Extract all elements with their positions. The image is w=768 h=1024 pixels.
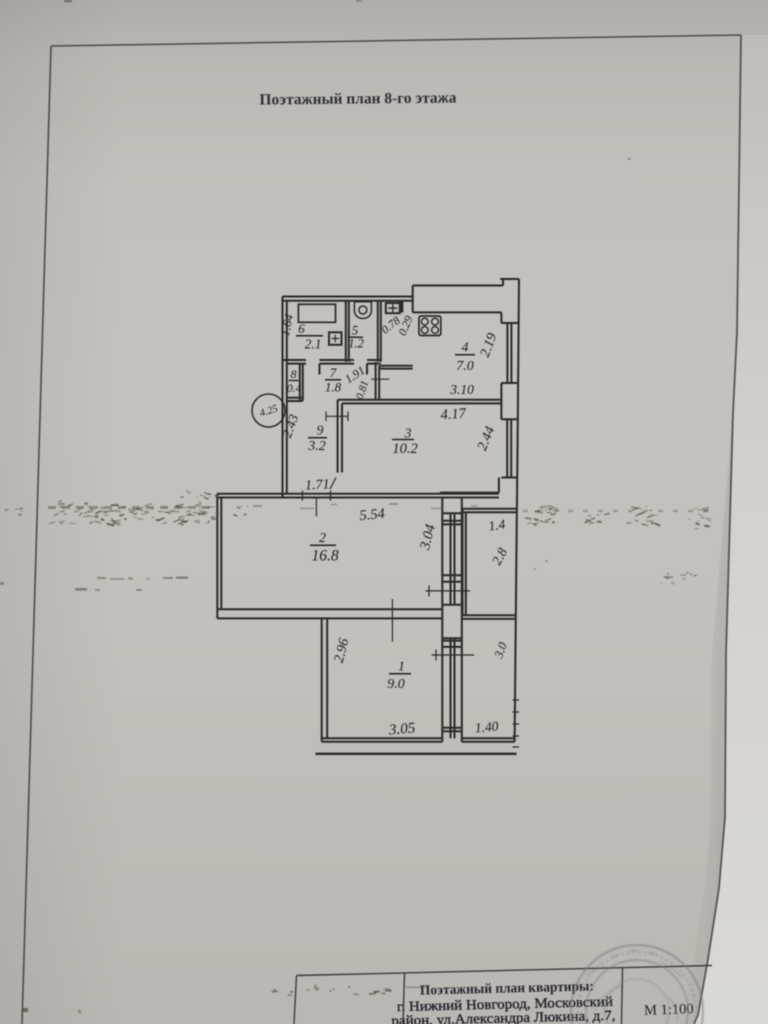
svg-text:0.4: 0.4	[287, 383, 302, 395]
svg-text:3.05: 3.05	[387, 720, 416, 738]
svg-text:3.2: 3.2	[307, 439, 326, 454]
svg-text:2: 2	[319, 531, 326, 546]
svg-text:1.4: 1.4	[487, 516, 506, 533]
svg-text:4: 4	[462, 341, 469, 356]
svg-text:5: 5	[352, 323, 359, 338]
svg-text:16.8: 16.8	[311, 548, 338, 565]
svg-text:4.17: 4.17	[440, 406, 467, 424]
svg-text:8: 8	[291, 367, 297, 381]
svg-text:1.2: 1.2	[348, 337, 364, 351]
svg-text:7.0: 7.0	[456, 359, 474, 374]
svg-text:1: 1	[398, 660, 405, 675]
svg-text:10.2: 10.2	[392, 441, 417, 457]
svg-text:3.10: 3.10	[449, 382, 474, 397]
svg-text:2.1: 2.1	[305, 337, 322, 352]
svg-text:9: 9	[317, 423, 324, 438]
svg-text:9.0: 9.0	[387, 677, 405, 692]
svg-text:5.54: 5.54	[359, 506, 386, 524]
svg-text:3: 3	[404, 426, 412, 441]
svg-text:1.40: 1.40	[474, 718, 499, 735]
svg-text:6: 6	[298, 321, 305, 336]
svg-text:1.71: 1.71	[305, 477, 330, 493]
svg-text:7: 7	[330, 365, 337, 380]
svg-text:Поэтажный план 8-го этажа: Поэтажный план 8-го этажа	[259, 89, 456, 108]
svg-text:1.8: 1.8	[325, 380, 342, 395]
